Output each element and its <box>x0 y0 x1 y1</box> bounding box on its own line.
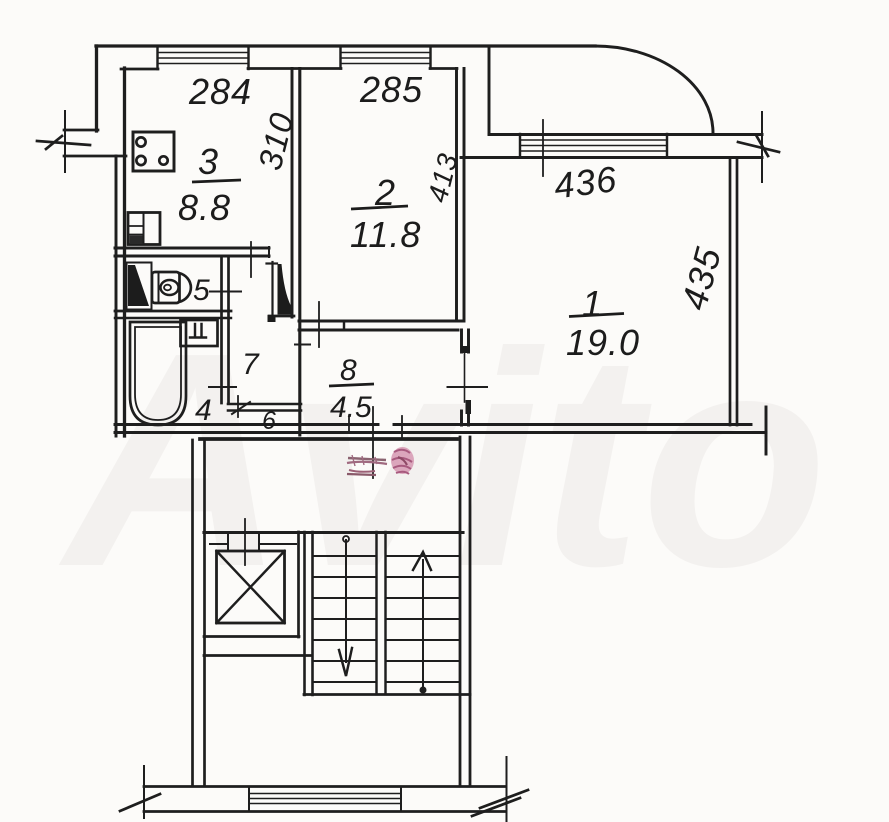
svg-text:5: 5 <box>193 274 210 307</box>
svg-text:19.0: 19.0 <box>566 322 640 363</box>
svg-text:1: 1 <box>582 283 603 324</box>
svg-text:Avito: Avito <box>55 289 827 630</box>
svg-text:3: 3 <box>198 141 219 182</box>
svg-text:6: 6 <box>262 407 276 435</box>
svg-text:436: 436 <box>552 158 620 206</box>
svg-text:284: 284 <box>188 71 252 112</box>
svg-text:8.8: 8.8 <box>178 187 231 228</box>
svg-text:4: 4 <box>195 394 212 427</box>
svg-text:11.8: 11.8 <box>350 214 421 255</box>
svg-text:7: 7 <box>242 348 260 381</box>
svg-text:8: 8 <box>340 354 357 387</box>
svg-text:285: 285 <box>359 69 423 110</box>
svg-text:4.5: 4.5 <box>330 391 372 424</box>
